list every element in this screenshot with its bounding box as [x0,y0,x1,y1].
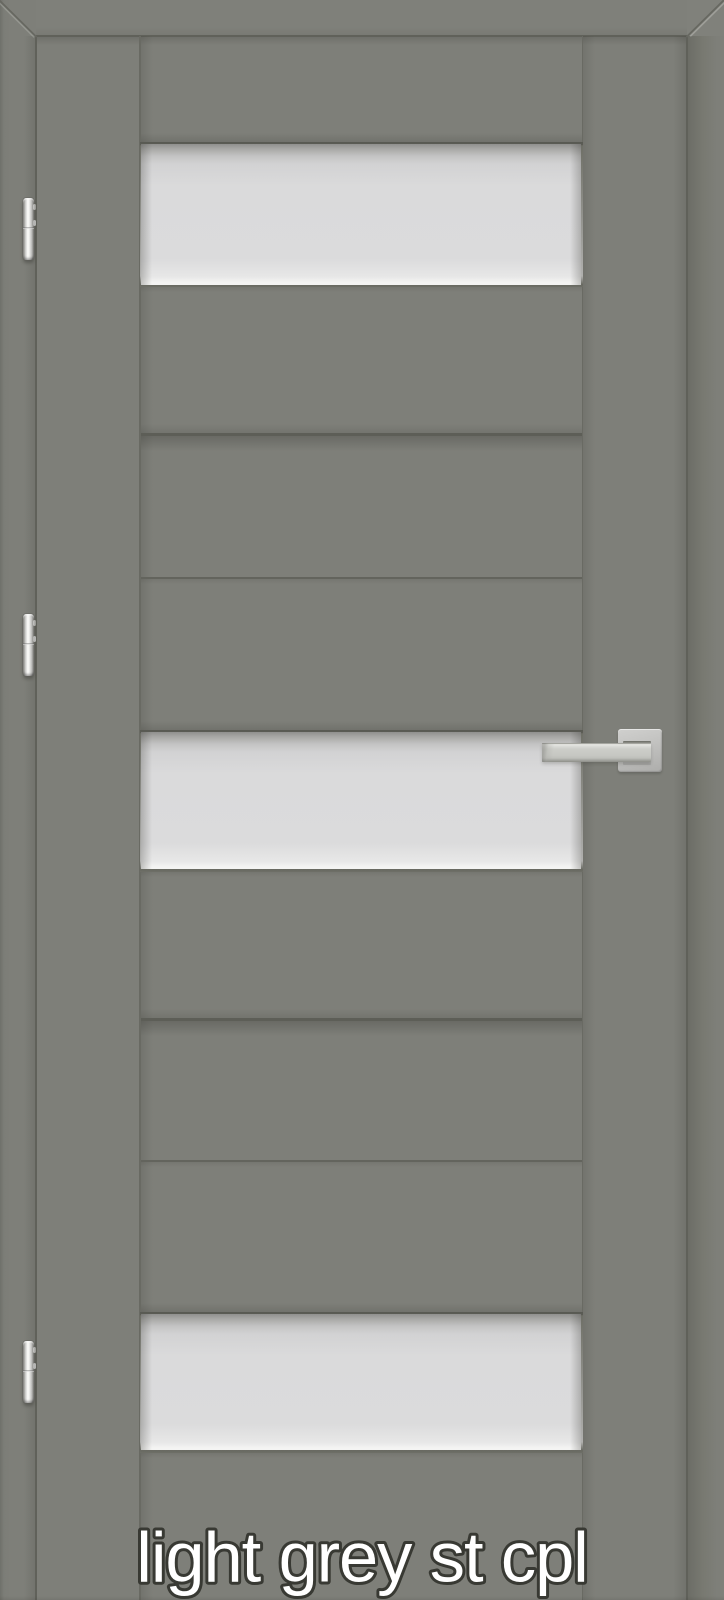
svg-text:light grey st cpl: light grey st cpl [136,1518,588,1597]
